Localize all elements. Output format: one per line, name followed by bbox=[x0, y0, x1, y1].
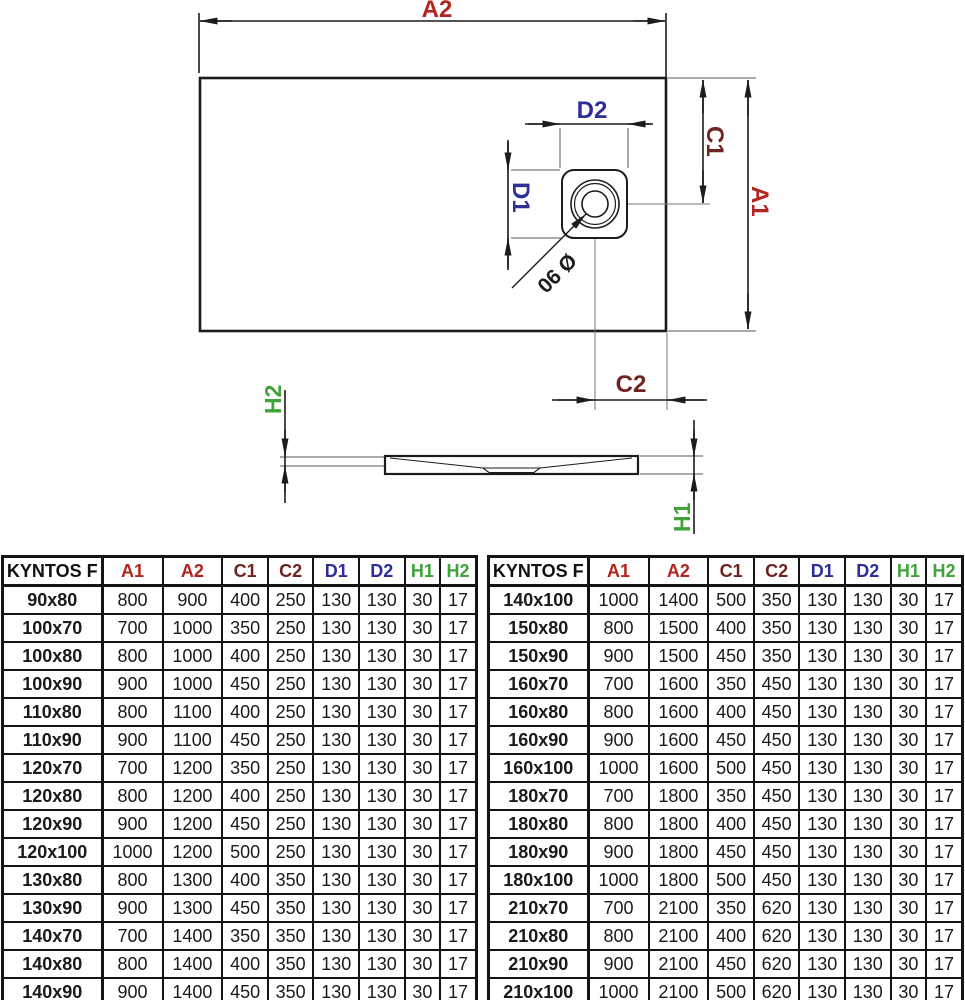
value-cell: 130 bbox=[313, 642, 359, 670]
column-header: H2 bbox=[926, 557, 962, 586]
column-header: C2 bbox=[754, 557, 800, 586]
value-cell: 400 bbox=[708, 922, 754, 950]
value-cell: 800 bbox=[102, 950, 163, 978]
value-cell: 800 bbox=[102, 586, 163, 615]
table-row: 140x7070014003503501301303017 bbox=[3, 922, 477, 950]
value-cell: 450 bbox=[222, 670, 268, 698]
table-row: 140x100100014005003501301303017 bbox=[489, 586, 963, 615]
value-cell: 30 bbox=[891, 894, 927, 922]
value-cell: 900 bbox=[588, 642, 649, 670]
column-header: D2 bbox=[359, 557, 405, 586]
table-row: 210x9090021004506201301303017 bbox=[489, 950, 963, 978]
value-cell: 1100 bbox=[163, 698, 223, 726]
value-cell: 130 bbox=[313, 670, 359, 698]
value-cell: 900 bbox=[102, 810, 163, 838]
value-cell: 30 bbox=[891, 726, 927, 754]
model-cell: 110x80 bbox=[3, 698, 103, 726]
model-cell: 140x70 bbox=[3, 922, 103, 950]
model-cell: 120x90 bbox=[3, 810, 103, 838]
value-cell: 700 bbox=[588, 670, 649, 698]
value-cell: 450 bbox=[754, 782, 800, 810]
label-h2: H2 bbox=[260, 385, 286, 414]
column-header: D2 bbox=[845, 557, 891, 586]
table-row: 180x100100018005004501301303017 bbox=[489, 866, 963, 894]
value-cell: 17 bbox=[926, 922, 962, 950]
value-cell: 17 bbox=[926, 670, 962, 698]
column-header: C2 bbox=[268, 557, 314, 586]
model-cell: 100x80 bbox=[3, 642, 103, 670]
model-cell: 120x70 bbox=[3, 754, 103, 782]
value-cell: 620 bbox=[754, 894, 800, 922]
model-cell: 210x70 bbox=[489, 894, 589, 922]
value-cell: 30 bbox=[405, 726, 441, 754]
value-cell: 350 bbox=[222, 754, 268, 782]
value-cell: 17 bbox=[440, 950, 476, 978]
value-cell: 250 bbox=[268, 754, 314, 782]
value-cell: 17 bbox=[926, 978, 962, 1000]
value-cell: 1000 bbox=[588, 586, 649, 615]
value-cell: 400 bbox=[708, 698, 754, 726]
value-cell: 17 bbox=[440, 726, 476, 754]
value-cell: 30 bbox=[891, 642, 927, 670]
value-cell: 350 bbox=[754, 586, 800, 615]
value-cell: 17 bbox=[926, 782, 962, 810]
value-cell: 700 bbox=[588, 782, 649, 810]
model-cell: 180x70 bbox=[489, 782, 589, 810]
value-cell: 400 bbox=[708, 810, 754, 838]
column-header: H2 bbox=[440, 557, 476, 586]
value-cell: 130 bbox=[845, 614, 891, 642]
value-cell: 450 bbox=[222, 894, 268, 922]
value-cell: 17 bbox=[440, 838, 476, 866]
table-row: 110x8080011004002501301303017 bbox=[3, 698, 477, 726]
value-cell: 130 bbox=[359, 614, 405, 642]
value-cell: 1800 bbox=[649, 782, 709, 810]
value-cell: 400 bbox=[222, 950, 268, 978]
model-cell: 110x90 bbox=[3, 726, 103, 754]
value-cell: 130 bbox=[313, 698, 359, 726]
value-cell: 130 bbox=[313, 782, 359, 810]
model-cell: 210x80 bbox=[489, 922, 589, 950]
value-cell: 30 bbox=[405, 754, 441, 782]
value-cell: 800 bbox=[102, 866, 163, 894]
value-cell: 400 bbox=[222, 866, 268, 894]
value-cell: 130 bbox=[359, 586, 405, 615]
column-header: A2 bbox=[163, 557, 223, 586]
value-cell: 900 bbox=[588, 838, 649, 866]
value-cell: 2100 bbox=[649, 894, 709, 922]
dimension-tables: KYNTOS FA1A2C1C2D1D2H1H2 90x808009004002… bbox=[0, 555, 965, 1000]
value-cell: 350 bbox=[268, 894, 314, 922]
value-cell: 800 bbox=[588, 614, 649, 642]
value-cell: 30 bbox=[891, 586, 927, 615]
value-cell: 30 bbox=[891, 754, 927, 782]
value-cell: 30 bbox=[891, 810, 927, 838]
value-cell: 500 bbox=[222, 838, 268, 866]
value-cell: 130 bbox=[313, 586, 359, 615]
value-cell: 620 bbox=[754, 922, 800, 950]
value-cell: 130 bbox=[313, 894, 359, 922]
value-cell: 130 bbox=[313, 754, 359, 782]
value-cell: 130 bbox=[359, 670, 405, 698]
value-cell: 800 bbox=[588, 922, 649, 950]
value-cell: 30 bbox=[405, 810, 441, 838]
value-cell: 1000 bbox=[588, 866, 649, 894]
value-cell: 17 bbox=[440, 698, 476, 726]
value-cell: 1000 bbox=[163, 614, 223, 642]
value-cell: 130 bbox=[359, 642, 405, 670]
value-cell: 30 bbox=[405, 838, 441, 866]
value-cell: 250 bbox=[268, 586, 314, 615]
value-cell: 250 bbox=[268, 782, 314, 810]
column-header: H1 bbox=[891, 557, 927, 586]
value-cell: 130 bbox=[799, 698, 845, 726]
value-cell: 250 bbox=[268, 614, 314, 642]
value-cell: 2100 bbox=[649, 950, 709, 978]
value-cell: 130 bbox=[845, 754, 891, 782]
label-h1: H1 bbox=[669, 502, 695, 532]
value-cell: 450 bbox=[754, 810, 800, 838]
table-row: 180x7070018003504501301303017 bbox=[489, 782, 963, 810]
value-cell: 130 bbox=[359, 866, 405, 894]
table-header-row: KYNTOS FA1A2C1C2D1D2H1H2 bbox=[3, 557, 477, 586]
model-cell: 130x80 bbox=[3, 866, 103, 894]
value-cell: 130 bbox=[359, 726, 405, 754]
value-cell: 130 bbox=[845, 726, 891, 754]
value-cell: 17 bbox=[926, 698, 962, 726]
table-row: 120x7070012003502501301303017 bbox=[3, 754, 477, 782]
value-cell: 700 bbox=[102, 922, 163, 950]
technical-drawing: A2 A1 C1 D2 D1 bbox=[0, 0, 965, 548]
value-cell: 17 bbox=[440, 782, 476, 810]
value-cell: 17 bbox=[926, 754, 962, 782]
model-cell: 150x80 bbox=[489, 614, 589, 642]
model-cell: 160x80 bbox=[489, 698, 589, 726]
value-cell: 130 bbox=[313, 922, 359, 950]
table-row: 150x9090015004503501301303017 bbox=[489, 642, 963, 670]
label-a1: A1 bbox=[746, 186, 773, 217]
table-row: 130x8080013004003501301303017 bbox=[3, 866, 477, 894]
value-cell: 800 bbox=[588, 698, 649, 726]
dimension-table-left: KYNTOS FA1A2C1C2D1D2H1H2 90x808009004002… bbox=[1, 555, 478, 1000]
table-row: 160x7070016003504501301303017 bbox=[489, 670, 963, 698]
value-cell: 450 bbox=[754, 726, 800, 754]
value-cell: 620 bbox=[754, 950, 800, 978]
value-cell: 130 bbox=[845, 642, 891, 670]
value-cell: 450 bbox=[754, 698, 800, 726]
value-cell: 130 bbox=[359, 894, 405, 922]
label-a2: A2 bbox=[422, 0, 453, 23]
value-cell: 1800 bbox=[649, 838, 709, 866]
value-cell: 450 bbox=[708, 950, 754, 978]
value-cell: 1600 bbox=[649, 698, 709, 726]
table-header-row: KYNTOS FA1A2C1C2D1D2H1H2 bbox=[489, 557, 963, 586]
value-cell: 30 bbox=[891, 670, 927, 698]
value-cell: 1100 bbox=[163, 726, 223, 754]
value-cell: 1600 bbox=[649, 726, 709, 754]
value-cell: 17 bbox=[440, 586, 476, 615]
value-cell: 130 bbox=[359, 950, 405, 978]
value-cell: 400 bbox=[222, 782, 268, 810]
value-cell: 130 bbox=[313, 950, 359, 978]
value-cell: 450 bbox=[222, 978, 268, 1000]
value-cell: 250 bbox=[268, 670, 314, 698]
value-cell: 30 bbox=[405, 614, 441, 642]
value-cell: 900 bbox=[588, 726, 649, 754]
model-cell: 160x70 bbox=[489, 670, 589, 698]
column-header: A1 bbox=[588, 557, 649, 586]
model-cell: 210x100 bbox=[489, 978, 589, 1000]
value-cell: 130 bbox=[799, 810, 845, 838]
value-cell: 900 bbox=[102, 978, 163, 1000]
value-cell: 350 bbox=[268, 978, 314, 1000]
value-cell: 350 bbox=[708, 670, 754, 698]
value-cell: 30 bbox=[891, 950, 927, 978]
value-cell: 30 bbox=[891, 838, 927, 866]
value-cell: 400 bbox=[222, 698, 268, 726]
value-cell: 350 bbox=[268, 950, 314, 978]
column-header: C1 bbox=[708, 557, 754, 586]
value-cell: 500 bbox=[708, 754, 754, 782]
value-cell: 1000 bbox=[102, 838, 163, 866]
value-cell: 2100 bbox=[649, 978, 709, 1000]
value-cell: 900 bbox=[102, 894, 163, 922]
value-cell: 1500 bbox=[649, 614, 709, 642]
value-cell: 800 bbox=[588, 810, 649, 838]
value-cell: 130 bbox=[845, 586, 891, 615]
value-cell: 450 bbox=[754, 866, 800, 894]
value-cell: 620 bbox=[754, 978, 800, 1000]
value-cell: 130 bbox=[359, 754, 405, 782]
value-cell: 130 bbox=[845, 922, 891, 950]
value-cell: 30 bbox=[405, 670, 441, 698]
value-cell: 130 bbox=[359, 698, 405, 726]
value-cell: 30 bbox=[405, 698, 441, 726]
value-cell: 130 bbox=[799, 754, 845, 782]
value-cell: 1600 bbox=[649, 754, 709, 782]
value-cell: 130 bbox=[313, 810, 359, 838]
column-header: D1 bbox=[799, 557, 845, 586]
value-cell: 30 bbox=[891, 698, 927, 726]
table-row: 110x9090011004502501301303017 bbox=[3, 726, 477, 754]
value-cell: 130 bbox=[799, 726, 845, 754]
table-row: 210x100100021005006201301303017 bbox=[489, 978, 963, 1000]
value-cell: 450 bbox=[754, 670, 800, 698]
value-cell: 17 bbox=[440, 922, 476, 950]
value-cell: 700 bbox=[588, 894, 649, 922]
value-cell: 500 bbox=[708, 978, 754, 1000]
model-cell: 210x90 bbox=[489, 950, 589, 978]
value-cell: 800 bbox=[102, 782, 163, 810]
table-row: 140x8080014004003501301303017 bbox=[3, 950, 477, 978]
model-cell: 100x90 bbox=[3, 670, 103, 698]
value-cell: 30 bbox=[891, 866, 927, 894]
value-cell: 1300 bbox=[163, 894, 223, 922]
value-cell: 17 bbox=[440, 978, 476, 1000]
value-cell: 350 bbox=[754, 642, 800, 670]
table-row: 140x9090014004503501301303017 bbox=[3, 978, 477, 1000]
value-cell: 17 bbox=[926, 810, 962, 838]
value-cell: 250 bbox=[268, 698, 314, 726]
value-cell: 17 bbox=[440, 754, 476, 782]
value-cell: 130 bbox=[845, 950, 891, 978]
table-row: 180x8080018004004501301303017 bbox=[489, 810, 963, 838]
model-cell: 160x100 bbox=[489, 754, 589, 782]
value-cell: 130 bbox=[313, 726, 359, 754]
table-row: 180x9090018004504501301303017 bbox=[489, 838, 963, 866]
value-cell: 900 bbox=[163, 586, 223, 615]
value-cell: 130 bbox=[845, 894, 891, 922]
table-row: 120x9090012004502501301303017 bbox=[3, 810, 477, 838]
value-cell: 130 bbox=[359, 810, 405, 838]
value-cell: 17 bbox=[926, 726, 962, 754]
value-cell: 250 bbox=[268, 642, 314, 670]
column-header: D1 bbox=[313, 557, 359, 586]
value-cell: 700 bbox=[102, 614, 163, 642]
value-cell: 400 bbox=[222, 586, 268, 615]
model-cell: 90x80 bbox=[3, 586, 103, 615]
table-row: 100x9090010004502501301303017 bbox=[3, 670, 477, 698]
table-row: 90x808009004002501301303017 bbox=[3, 586, 477, 615]
value-cell: 800 bbox=[102, 698, 163, 726]
value-cell: 130 bbox=[359, 922, 405, 950]
value-cell: 450 bbox=[754, 838, 800, 866]
value-cell: 450 bbox=[222, 810, 268, 838]
value-cell: 17 bbox=[440, 670, 476, 698]
value-cell: 800 bbox=[102, 642, 163, 670]
value-cell: 900 bbox=[102, 670, 163, 698]
value-cell: 250 bbox=[268, 838, 314, 866]
value-cell: 130 bbox=[845, 866, 891, 894]
value-cell: 1000 bbox=[588, 978, 649, 1000]
model-cell: 140x100 bbox=[489, 586, 589, 615]
value-cell: 400 bbox=[222, 642, 268, 670]
model-cell: 130x90 bbox=[3, 894, 103, 922]
value-cell: 500 bbox=[708, 586, 754, 615]
value-cell: 250 bbox=[268, 726, 314, 754]
value-cell: 130 bbox=[799, 866, 845, 894]
value-cell: 130 bbox=[359, 782, 405, 810]
value-cell: 500 bbox=[708, 866, 754, 894]
value-cell: 130 bbox=[313, 614, 359, 642]
value-cell: 1200 bbox=[163, 754, 223, 782]
value-cell: 350 bbox=[222, 614, 268, 642]
table-row: 160x8080016004004501301303017 bbox=[489, 698, 963, 726]
value-cell: 17 bbox=[926, 586, 962, 615]
value-cell: 130 bbox=[845, 698, 891, 726]
value-cell: 130 bbox=[799, 922, 845, 950]
value-cell: 450 bbox=[754, 754, 800, 782]
value-cell: 17 bbox=[926, 614, 962, 642]
value-cell: 130 bbox=[313, 838, 359, 866]
value-cell: 350 bbox=[222, 922, 268, 950]
value-cell: 17 bbox=[926, 642, 962, 670]
value-cell: 130 bbox=[799, 642, 845, 670]
value-cell: 1800 bbox=[649, 810, 709, 838]
value-cell: 1000 bbox=[163, 670, 223, 698]
value-cell: 350 bbox=[708, 782, 754, 810]
table-title-cell: KYNTOS F bbox=[489, 557, 589, 586]
model-cell: 140x80 bbox=[3, 950, 103, 978]
value-cell: 1000 bbox=[588, 754, 649, 782]
value-cell: 350 bbox=[708, 894, 754, 922]
table-row: 130x9090013004503501301303017 bbox=[3, 894, 477, 922]
value-cell: 1800 bbox=[649, 866, 709, 894]
value-cell: 450 bbox=[708, 642, 754, 670]
table-row: 160x100100016005004501301303017 bbox=[489, 754, 963, 782]
value-cell: 130 bbox=[799, 782, 845, 810]
table-row: 100x8080010004002501301303017 bbox=[3, 642, 477, 670]
value-cell: 30 bbox=[405, 978, 441, 1000]
value-cell: 17 bbox=[440, 614, 476, 642]
value-cell: 130 bbox=[845, 670, 891, 698]
value-cell: 130 bbox=[799, 670, 845, 698]
model-cell: 160x90 bbox=[489, 726, 589, 754]
value-cell: 17 bbox=[926, 894, 962, 922]
value-cell: 17 bbox=[440, 642, 476, 670]
tray-profile bbox=[385, 456, 638, 474]
table-title-cell: KYNTOS F bbox=[3, 557, 103, 586]
value-cell: 1200 bbox=[163, 782, 223, 810]
value-cell: 450 bbox=[708, 838, 754, 866]
value-cell: 1400 bbox=[649, 586, 709, 615]
value-cell: 130 bbox=[845, 782, 891, 810]
value-cell: 17 bbox=[440, 866, 476, 894]
table-row: 150x8080015004003501301303017 bbox=[489, 614, 963, 642]
value-cell: 130 bbox=[845, 838, 891, 866]
value-cell: 130 bbox=[799, 838, 845, 866]
value-cell: 130 bbox=[799, 586, 845, 615]
dimension-table-right: KYNTOS FA1A2C1C2D1D2H1H2 140x10010001400… bbox=[487, 555, 964, 1000]
value-cell: 30 bbox=[891, 782, 927, 810]
value-cell: 1400 bbox=[163, 978, 223, 1000]
value-cell: 17 bbox=[440, 894, 476, 922]
value-cell: 17 bbox=[926, 838, 962, 866]
value-cell: 400 bbox=[708, 614, 754, 642]
table-row: 210x7070021003506201301303017 bbox=[489, 894, 963, 922]
label-d1: D1 bbox=[507, 182, 534, 213]
table-row: 100x7070010003502501301303017 bbox=[3, 614, 477, 642]
label-c1: C1 bbox=[701, 126, 728, 157]
model-cell: 180x90 bbox=[489, 838, 589, 866]
value-cell: 1600 bbox=[649, 670, 709, 698]
value-cell: 350 bbox=[268, 866, 314, 894]
value-cell: 30 bbox=[405, 922, 441, 950]
value-cell: 450 bbox=[708, 726, 754, 754]
value-cell: 130 bbox=[799, 950, 845, 978]
value-cell: 30 bbox=[405, 950, 441, 978]
model-cell: 150x90 bbox=[489, 642, 589, 670]
table-row: 120x8080012004002501301303017 bbox=[3, 782, 477, 810]
value-cell: 1300 bbox=[163, 866, 223, 894]
label-c2: C2 bbox=[616, 371, 647, 398]
model-cell: 140x90 bbox=[3, 978, 103, 1000]
table-row: 160x9090016004504501301303017 bbox=[489, 726, 963, 754]
value-cell: 130 bbox=[799, 614, 845, 642]
value-cell: 130 bbox=[799, 894, 845, 922]
value-cell: 130 bbox=[845, 978, 891, 1000]
value-cell: 30 bbox=[405, 782, 441, 810]
value-cell: 1500 bbox=[649, 642, 709, 670]
table-row: 120x100100012005002501301303017 bbox=[3, 838, 477, 866]
model-cell: 120x100 bbox=[3, 838, 103, 866]
value-cell: 30 bbox=[891, 614, 927, 642]
value-cell: 350 bbox=[268, 922, 314, 950]
value-cell: 130 bbox=[313, 978, 359, 1000]
value-cell: 30 bbox=[891, 978, 927, 1000]
value-cell: 1400 bbox=[163, 950, 223, 978]
value-cell: 2100 bbox=[649, 922, 709, 950]
